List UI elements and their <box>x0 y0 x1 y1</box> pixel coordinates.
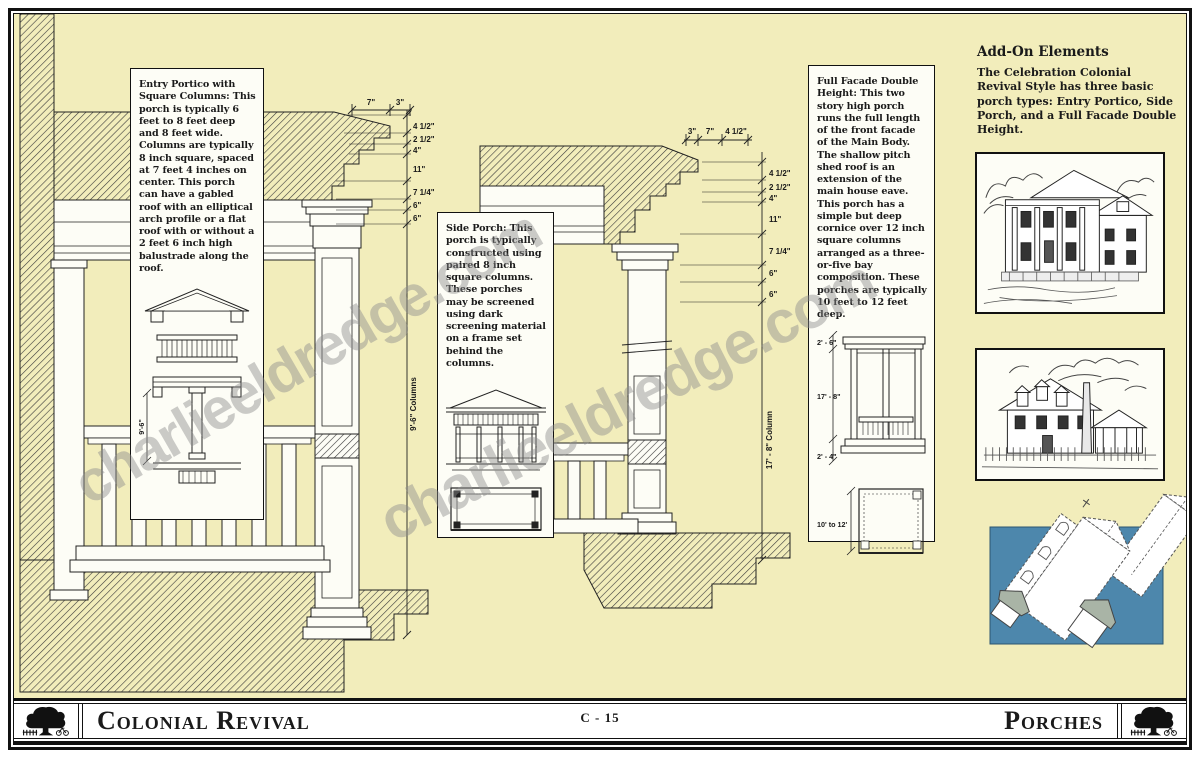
svg-text:6": 6" <box>769 269 777 278</box>
column-dim: 17' - 8" <box>817 392 841 401</box>
pediment-drawing <box>145 289 249 322</box>
entry-portico-title: Entry Portico with Square Columns <box>139 79 235 102</box>
wall-section-hatch <box>20 14 54 560</box>
entry-portico-elevation-drawing: 9'-6" <box>139 281 255 493</box>
side-porch-elevation-drawing <box>446 384 546 472</box>
footer-page-code: C - 15 <box>14 710 1186 726</box>
entry-portico-text: Entry Portico with Square Columns: This … <box>139 79 256 275</box>
column-elevation-drawing <box>143 377 241 483</box>
full-facade-plan-drawing: 10' to 12' <box>817 485 928 563</box>
svg-text:4 1/2": 4 1/2" <box>725 127 747 136</box>
svg-text:6": 6" <box>413 201 421 210</box>
svg-text:7 1/4": 7 1/4" <box>413 188 435 197</box>
side-porch-box: Side Porch: This porch is typically cons… <box>437 212 554 538</box>
column-height-label: 9'-6" Columns <box>409 377 418 431</box>
svg-text:4 1/2": 4 1/2" <box>769 169 791 178</box>
full-facade-house-sketch <box>975 152 1165 314</box>
side-porch-text: Side Porch: This porch is typically cons… <box>446 223 546 370</box>
ground-hatch <box>584 533 790 608</box>
page-border-frame: 7" 3" 4 1/2" 2 1/2" 4" 11" 7 1/4" 6" 6" … <box>8 8 1192 750</box>
base-dim: 2' - 4" <box>817 452 837 461</box>
church-axonometric-panel <box>974 466 1186 700</box>
svg-text:4 1/2": 4 1/2" <box>413 122 435 131</box>
column-dim-label: 9'-6" <box>139 419 146 435</box>
svg-text:7 1/4": 7 1/4" <box>769 247 791 256</box>
column-height-label: 17' - 8" Column <box>765 411 774 469</box>
addon-heading: Add-On Elements <box>977 44 1182 60</box>
svg-text:2 1/2": 2 1/2" <box>413 135 435 144</box>
cornice-dim: 2' - 6" <box>817 338 837 347</box>
side-porch-title: Side Porch <box>446 223 503 234</box>
svg-text:11": 11" <box>769 215 781 224</box>
svg-text:6": 6" <box>413 214 421 223</box>
page-content-area: 7" 3" 4 1/2" 2 1/2" 4" 11" 7 1/4" 6" 6" … <box>13 13 1187 745</box>
dimension-labels: 7" 3" 4 1/2" 2 1/2" 4" 11" 7 1/4" 6" 6" … <box>367 98 435 431</box>
side-porch-house-sketch <box>975 348 1165 481</box>
depth-dim: 10' to 12' <box>817 520 847 529</box>
addon-paragraph: The Celebration Colonial Revival Style h… <box>977 66 1179 137</box>
svg-text:4": 4" <box>769 194 777 203</box>
svg-text:3": 3" <box>396 98 404 107</box>
full-facade-elevation-drawing: 2' - 6" 17' - 8" 2' - 4" <box>817 331 928 469</box>
pattern-book-page: { "page": { "watermark": "charlieeldredg… <box>0 0 1200 758</box>
svg-text:7": 7" <box>706 127 714 136</box>
dimension-labels: 3" 7" 4 1/2" 4 1/2" 2 1/2" 4" 11" 7 1/4"… <box>688 127 791 469</box>
svg-text:2 1/2": 2 1/2" <box>769 183 791 192</box>
svg-text:3": 3" <box>688 127 696 136</box>
svg-text:11": 11" <box>413 165 425 174</box>
porch-column <box>612 244 678 534</box>
dimension-ladder <box>680 134 766 564</box>
svg-text:7": 7" <box>367 98 375 107</box>
roof-balustrade-drawing <box>157 335 237 362</box>
entry-portico-box: Entry Portico with Square Columns: This … <box>130 68 264 520</box>
full-facade-box: Full Facade Double Height: This two stor… <box>808 65 935 542</box>
svg-text:4": 4" <box>413 146 421 155</box>
footer-title-bar: Colonial Revival C - 15 Porches <box>14 698 1186 744</box>
side-porch-plan-drawing <box>446 484 546 536</box>
svg-text:6": 6" <box>769 290 777 299</box>
full-facade-text: Full Facade Double Height: This two stor… <box>817 76 927 321</box>
